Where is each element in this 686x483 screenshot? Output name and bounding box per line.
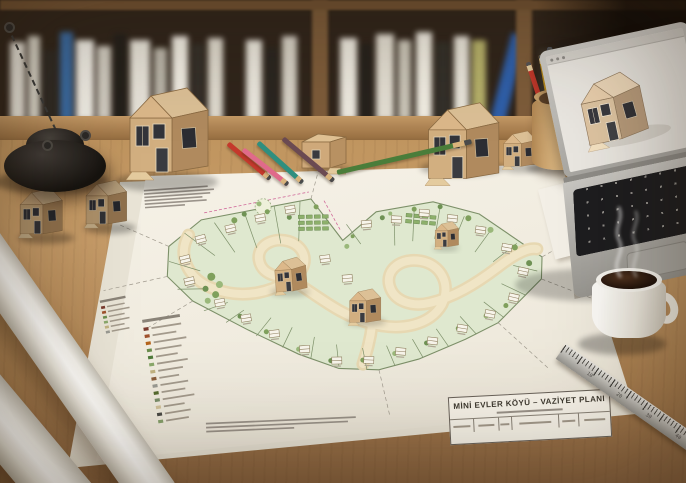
wood-house-left-a xyxy=(18,188,62,238)
ruler-number: 10 xyxy=(585,371,593,379)
ruler-number: 40 xyxy=(674,433,682,441)
toolbar-icon xyxy=(562,55,566,59)
toolbar-icon xyxy=(556,57,560,61)
lamp-joint xyxy=(80,130,91,141)
steam-wisps xyxy=(606,206,652,278)
plan-model-house-3 xyxy=(434,222,459,250)
toolbar-icon xyxy=(550,58,554,62)
ruler-number: 30 xyxy=(644,412,652,420)
cad-app-window xyxy=(545,28,686,173)
desk-scene: MİNİ EVLER KÖYÜ – VAZİYET PLANI xyxy=(0,0,686,483)
wood-house-large xyxy=(126,88,208,180)
wood-house-cube xyxy=(302,134,346,174)
lamp-joint xyxy=(4,22,15,33)
lamp-joint xyxy=(42,140,53,151)
lamp-base xyxy=(4,140,106,192)
plan-model-house-2 xyxy=(348,289,381,326)
ruler-number: 20 xyxy=(615,392,623,400)
